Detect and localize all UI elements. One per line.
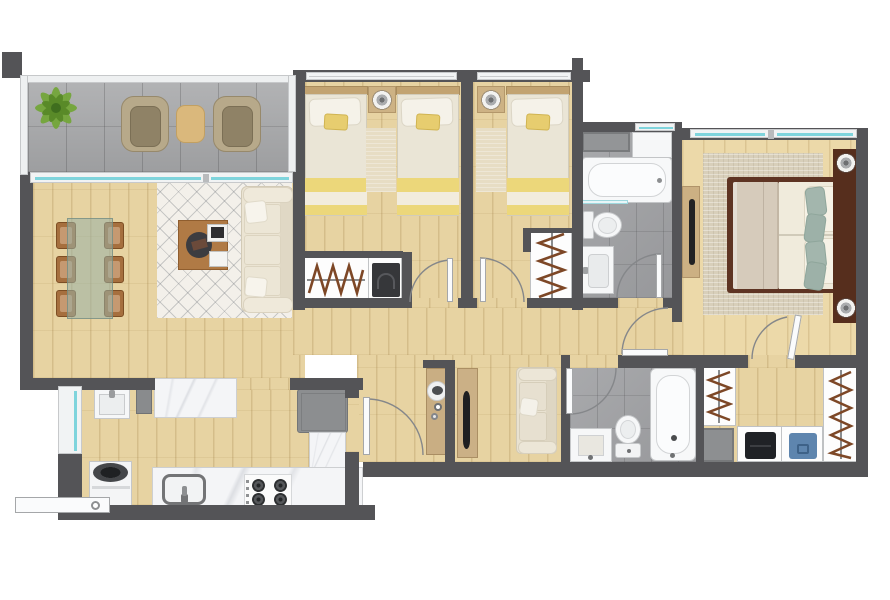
bathroom1-door-arc [617,254,661,298]
kitchen-door-leaf [363,397,370,455]
bedroom1-door-arc [410,260,452,302]
door-arcs [0,0,890,600]
bedroom1-door-leaf [447,258,453,302]
master-closet-door-arc [752,317,787,359]
floor-plan [0,0,890,600]
bathroom2-door-leaf [566,368,573,414]
bedroom2-door-leaf [480,258,486,302]
corridor-door-leaf [622,349,668,356]
entry-door-leaf [15,497,110,513]
door-knob [91,501,100,510]
bathroom1-door-leaf [656,254,662,298]
bathroom2-door-arc [570,368,616,414]
corridor-door-arc [622,308,668,354]
bedroom2-door-arc [480,258,524,302]
kitchen-door-arc [367,399,423,455]
